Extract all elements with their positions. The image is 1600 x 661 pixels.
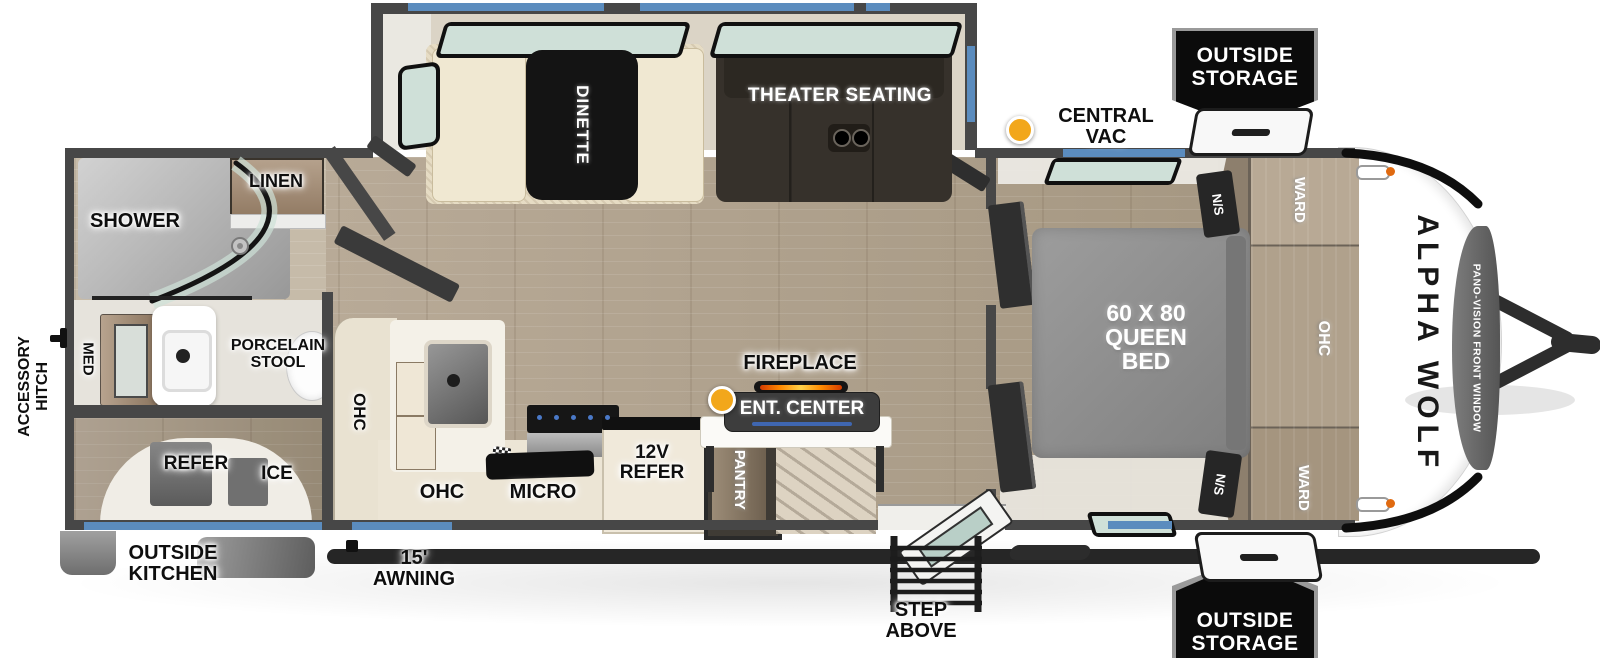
pano-vision-front-window: PANO-VISION FRONT WINDOW <box>1452 226 1500 470</box>
storage-bottom-line2: STORAGE <box>1192 632 1299 655</box>
kitchen-ohc-upper-label: OHC <box>346 382 372 442</box>
slide-top-window-strip-1 <box>408 3 604 11</box>
marker-light-top-lens <box>1386 167 1395 176</box>
shower-label: SHOWER <box>90 209 180 233</box>
theater-seating-label: THEATER SEATING <box>742 84 938 108</box>
med-label: MED <box>76 326 100 392</box>
accessory-hitch-line1: ACCESSORY <box>16 336 34 437</box>
fireplace-label: FIREPLACE <box>740 351 860 375</box>
ice-label: ICE <box>254 464 300 484</box>
refer-label: REFER <box>158 454 234 474</box>
bedroom-window-top <box>1043 158 1183 185</box>
porcelain-stool-label: PORCELAIN STOOL <box>228 334 328 376</box>
stove-burner-5 <box>605 415 610 420</box>
top-wall-left <box>65 148 373 158</box>
stove-burner-4 <box>588 415 593 420</box>
ward-bottom-text: WARD <box>1295 465 1311 511</box>
ohc-upper-text: OHC <box>350 393 368 431</box>
entry-grab-rail <box>1008 545 1092 560</box>
med-text: MED <box>80 342 96 375</box>
storage-hatch-top <box>1188 108 1314 156</box>
accessory-hitch-line2: HITCH <box>34 336 52 437</box>
bed-line3: BED <box>1122 349 1171 373</box>
storage-hatch-bottom <box>1194 532 1324 582</box>
brand-label: ALPHA WOLF <box>1404 218 1450 470</box>
left-wall <box>65 148 74 530</box>
kitchen-faucet <box>447 374 460 387</box>
outside-kitchen-label: OUTSIDE KITCHEN <box>118 539 228 589</box>
bottom-window-strip-outside-kitchen <box>84 522 322 530</box>
soundbar <box>752 422 852 426</box>
cup-holder-right <box>852 129 870 147</box>
bath-faucet <box>176 349 190 363</box>
accessory-hitch-text: ACCESSORY HITCH <box>16 336 53 437</box>
ent-table-leg-right <box>876 446 884 492</box>
slide-right-window-strip <box>967 46 975 122</box>
kitchen-ohc-lower-label: OHC <box>414 480 470 504</box>
slide-wall-left <box>371 3 383 150</box>
stove-burner-1 <box>537 415 542 420</box>
hitch-coupler <box>1560 342 1592 345</box>
bedroom-partition-stub-mid <box>986 305 996 389</box>
ward-top-label: WARD <box>1286 168 1312 232</box>
ward-bottom-label: WARD <box>1290 456 1316 520</box>
marker-light-bottom <box>1356 497 1390 512</box>
storage-top-line1: OUTSIDE <box>1197 44 1294 67</box>
awning-label: 15' AWNING <box>358 556 470 582</box>
outside-kitchen-corner-panel <box>60 531 116 575</box>
porcelain-line1: PORCELAIN <box>231 338 325 355</box>
slide-window-left <box>398 61 440 151</box>
outside-kitchen-line2: KITCHEN <box>129 564 218 585</box>
porcelain-line2: STOOL <box>251 355 306 372</box>
central-vac-label: CENTRAL VAC <box>1036 115 1176 139</box>
step-above-label: STEP ABOVE <box>858 608 984 634</box>
ent-center-label: ENT. CENTER <box>740 398 865 420</box>
central-vac-outlet-dot <box>708 386 736 414</box>
ent-table-leg-left <box>706 446 714 492</box>
refer-12v-line2: REFER <box>620 463 684 483</box>
med-mirror <box>114 324 148 398</box>
linen-shelf-edge <box>230 214 326 229</box>
linen-label: LINEN <box>238 170 314 192</box>
cup-holder-left <box>833 129 851 147</box>
fireplace-flame-strip <box>760 385 842 390</box>
marker-light-top <box>1356 165 1390 180</box>
floorplan-canvas: ALPHA WOLF PANO-VISION FRONT WINDOW SHOW… <box>0 0 1600 661</box>
hitch-arm-top <box>1494 300 1567 338</box>
pantry-text: PANTRY <box>731 450 747 510</box>
central-vac-dot <box>1006 116 1034 144</box>
bedroom-ohc-label: OHC <box>1310 308 1336 368</box>
dinette-bench-left <box>432 48 526 202</box>
micro-label: MICRO <box>508 480 578 504</box>
ent-center-box: ENT. CENTER <box>724 392 880 432</box>
refer-12v-top <box>602 417 702 430</box>
micro-hood <box>486 450 595 480</box>
bed-line1: 60 X 80 <box>1106 301 1185 325</box>
dinette-text: DINETTE <box>572 85 592 165</box>
bed-label: 60 X 80 QUEEN BED <box>1076 294 1216 380</box>
marker-light-bottom-lens <box>1386 499 1395 508</box>
bed-pillow-strip <box>1226 236 1246 450</box>
stove-burner-2 <box>554 415 559 420</box>
bottom-window-strip-bedroom <box>1108 521 1172 529</box>
storage-bottom-line1: OUTSIDE <box>1197 609 1294 632</box>
refer-12v-line1: 12V <box>635 443 669 463</box>
bedroom-ohc-text: OHC <box>1315 320 1332 356</box>
ns-top-text: N/S <box>1209 192 1227 216</box>
awning-bracket <box>346 540 358 552</box>
slide-top-window-strip-2 <box>640 3 854 11</box>
slide-window-top-2 <box>709 22 963 58</box>
slide-top-window-strip-3 <box>866 3 890 11</box>
stove-burner-3 <box>571 415 576 420</box>
front-window-label: PANO-VISION FRONT WINDOW <box>1470 264 1482 433</box>
top-wall-window-strip <box>1063 149 1185 157</box>
bath-south-wall <box>65 405 333 418</box>
dinette-table: DINETTE <box>526 50 638 200</box>
fireplace-insert <box>754 381 848 393</box>
accessory-hitch-label: ACCESSORY HITCH <box>2 318 66 454</box>
storage-top-line2: STORAGE <box>1192 67 1299 90</box>
storage-hatch-bottom-handle <box>1239 554 1278 561</box>
bed-line2: QUEEN <box>1105 325 1187 349</box>
ward-top-text: WARD <box>1291 177 1307 223</box>
outside-kitchen-east-wall <box>322 405 333 530</box>
bottom-window-strip-kitchen <box>352 522 452 530</box>
ns-bottom-text: N/S <box>1211 472 1229 496</box>
brand-text: ALPHA WOLF <box>1411 215 1443 474</box>
storage-hatch-top-handle <box>1231 129 1270 136</box>
pantry-label: PANTRY <box>714 436 764 524</box>
outside-kitchen-line1: OUTSIDE <box>129 543 218 564</box>
hitch-arm-bottom <box>1494 346 1567 384</box>
refer-12v-label: 12V REFER <box>612 440 692 486</box>
bottom-wall-right <box>1005 520 1355 530</box>
outside-refer-box <box>150 442 212 506</box>
